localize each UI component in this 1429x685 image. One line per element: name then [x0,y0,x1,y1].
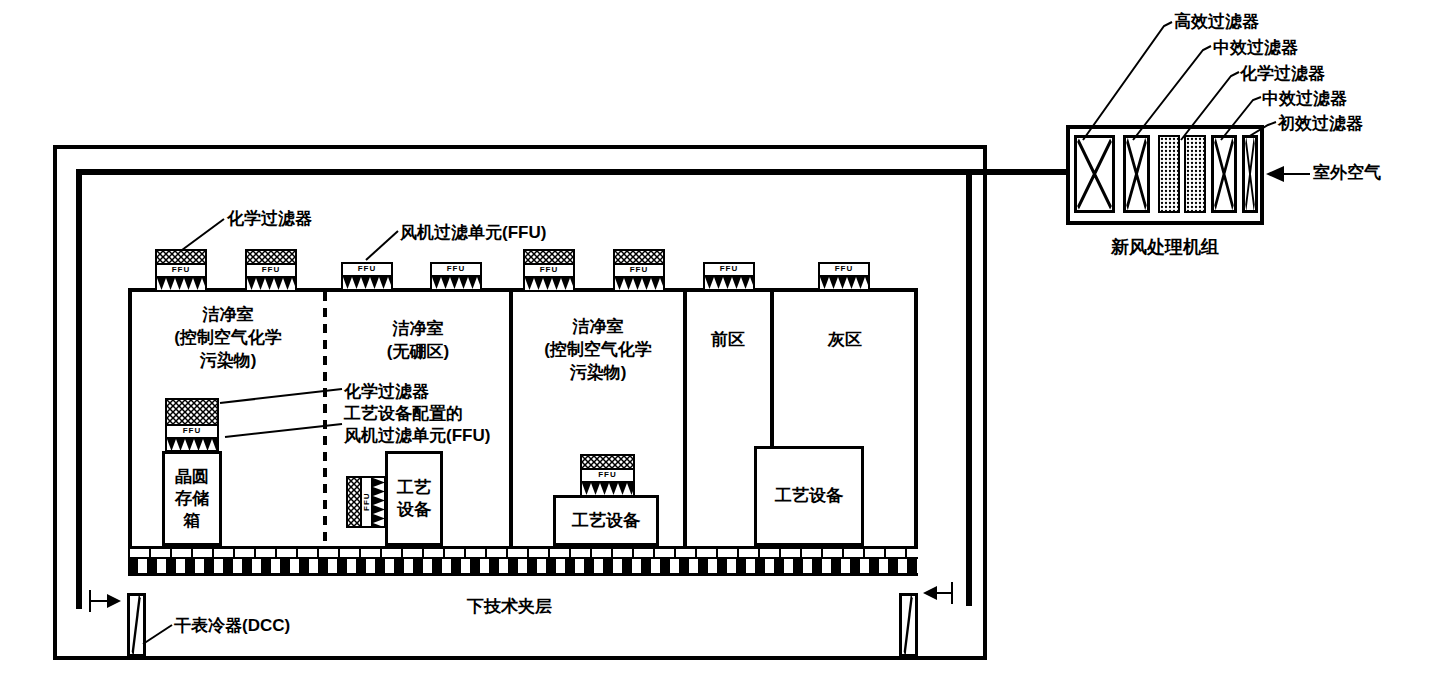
filter-pleats [373,478,384,526]
filter-pleats [343,277,391,289]
process-tool-label: 工艺设备 [775,485,843,507]
ffu-fan-box: FFU [525,265,573,278]
dcc-label: 干表冷器(DCC) [174,615,290,636]
room-name: 洁净室 [515,315,681,338]
ffu-label: FFU [432,264,480,274]
process-tool-label: 设备 [397,499,431,521]
medium-filter-1 [1123,135,1150,213]
roof-chemical-filter-callout: 化学过滤器 [227,208,312,229]
room-note: (控制空气化学 [515,338,681,361]
ffu-label: FFU [582,470,633,480]
chemical-filter-bed-1 [1158,135,1180,213]
outdoor-air-label: 室外空气 [1313,162,1381,183]
tool-top-ffu-stack: FFU [580,454,635,497]
room-note: 污染物) [515,361,681,384]
room-name: 洁净室 [329,317,507,340]
filter-pleats [582,483,633,495]
room-note: (控制空气化学 [134,326,322,349]
medium-filter-2 [1211,135,1237,213]
process-tool-grayzone: 工艺设备 [754,446,864,546]
roof-ffu-callout: 风机过滤单元(FFU) [400,222,546,243]
wafer-box-label: 晶圆 [175,466,209,488]
wafer-box-label: 存储 [175,488,209,510]
ffu-fan-box: FFU [362,478,373,526]
primary-filter [1242,135,1258,213]
cleanroom-left-wall [128,288,132,546]
diagram-canvas: FFU FFU FFU FFU FFU FFU FFU FFU 化学过滤器 风机… [0,0,1429,685]
room-label-cleanroom-1: 洁净室 (控制空气化学 污染物) [134,303,322,372]
ffu-fan-box: FFU [820,264,868,277]
process-tool-cleanroom3: 工艺设备 [553,495,659,546]
room-name: 洁净室 [134,303,322,326]
callout-primary-filter: 初效过滤器 [1278,113,1363,134]
roof-ffu-chemical-5: FFU [523,249,575,292]
chemical-filter-media [167,400,217,426]
chemical-filter-bed-2 [1184,135,1206,213]
roof-ffu-4: FFU [430,262,482,291]
ffu-fan-box: FFU [615,265,663,278]
supply-duct-right [966,169,972,606]
process-tool-label: 工艺 [397,477,431,499]
wafer-box-label: 箱 [184,510,201,532]
process-tool-label: 工艺设备 [572,510,640,532]
roof-ffu-8: FFU [818,262,870,291]
makeup-air-unit-label: 新风处理机组 [1066,236,1264,259]
dcc-right [899,593,918,657]
ffu-label: FFU [525,265,573,275]
chemical-filter-media [348,478,362,526]
chemical-filter-media [582,456,633,470]
room-note: (无硼区) [329,340,507,363]
ffu-fan-box: FFU [167,426,217,439]
callout-medium-filter-1: 中效过滤器 [1213,37,1298,58]
filter-pleats [615,278,663,290]
room-label-cleanroom-2: 洁净室 (无硼区) [329,317,507,363]
supply-duct-top [76,169,1068,175]
wall-cleanroom2-3 [509,288,513,546]
filter-pleats [525,278,573,290]
ffu-label: FFU [343,264,391,274]
ffu-label: FFU [362,478,371,526]
wall-front-gray [770,288,774,448]
roof-ffu-7: FFU [703,262,755,291]
filter-pleats [157,278,205,290]
cleanroom-right-wall [914,288,918,546]
ffu-label: FFU [615,265,663,275]
callout-chemical-filter: 化学过滤器 [1240,63,1325,84]
filter-pleats [432,277,480,289]
wall-cleanroom3-front [683,288,687,546]
tool-ffu-callout: 化学过滤器 工艺设备配置的 风机过滤单元(FFU) [344,381,490,447]
dashed-partition-cleanroom1-2 [323,292,327,546]
callout-medium-filter-2: 中效过滤器 [1262,88,1347,109]
ffu-label: FFU [157,265,205,275]
roof-ffu-chemical-6: FFU [613,249,665,292]
ffu-fan-box: FFU [705,264,753,277]
chemical-filter-media [247,251,295,265]
ffu-fan-box: FFU [157,265,205,278]
roof-ffu-3: FFU [341,262,393,291]
outdoor-air-arrowhead [1266,166,1284,182]
ffu-fan-box: FFU [247,265,295,278]
ffu-label: FFU [167,426,217,436]
ffu-label: FFU [705,264,753,274]
wafer-box-ffu-stack: FFU [165,398,219,452]
room-label-gray-zone: 灰区 [776,328,914,351]
dcc-left [127,593,146,657]
ffu-fan-box: FFU [432,264,480,277]
chemical-filter-media [615,251,663,265]
chemical-filter-media [525,251,573,265]
wafer-storage-box: 晶圆 存储 箱 [162,451,222,546]
raised-floor-grating [128,559,918,576]
ffu-fan-box: FFU [343,264,391,277]
roof-ffu-chemical-2: FFU [245,249,297,292]
filter-pleats [247,278,295,290]
process-tool-cleanroom2: 工艺 设备 [385,451,443,546]
supply-duct-left [76,169,82,609]
tool-ffu-callout-line: 风机过滤单元(FFU) [344,425,490,447]
tool-ffu-callout-line: 化学过滤器 [344,381,490,403]
room-note: 污染物) [134,349,322,372]
filter-pleats [167,439,217,450]
filter-pleats [820,277,868,289]
ffu-label: FFU [820,264,868,274]
ffu-fan-box: FFU [582,470,633,483]
raised-floor-tiles [128,546,918,559]
room-label-front-zone: 前区 [687,328,769,351]
tool-side-ffu: FFU [346,476,386,528]
callout-hepa-filter: 高效过滤器 [1174,11,1259,32]
room-label-cleanroom-3: 洁净室 (控制空气化学 污染物) [515,315,681,384]
hepa-filter [1074,135,1115,213]
roof-ffu-chemical-1: FFU [155,249,207,292]
plenum-label: 下技术夹层 [467,596,552,617]
chemical-filter-media [157,251,205,265]
ffu-label: FFU [247,265,295,275]
tool-ffu-callout-line: 工艺设备配置的 [344,403,490,425]
filter-pleats [705,277,753,289]
